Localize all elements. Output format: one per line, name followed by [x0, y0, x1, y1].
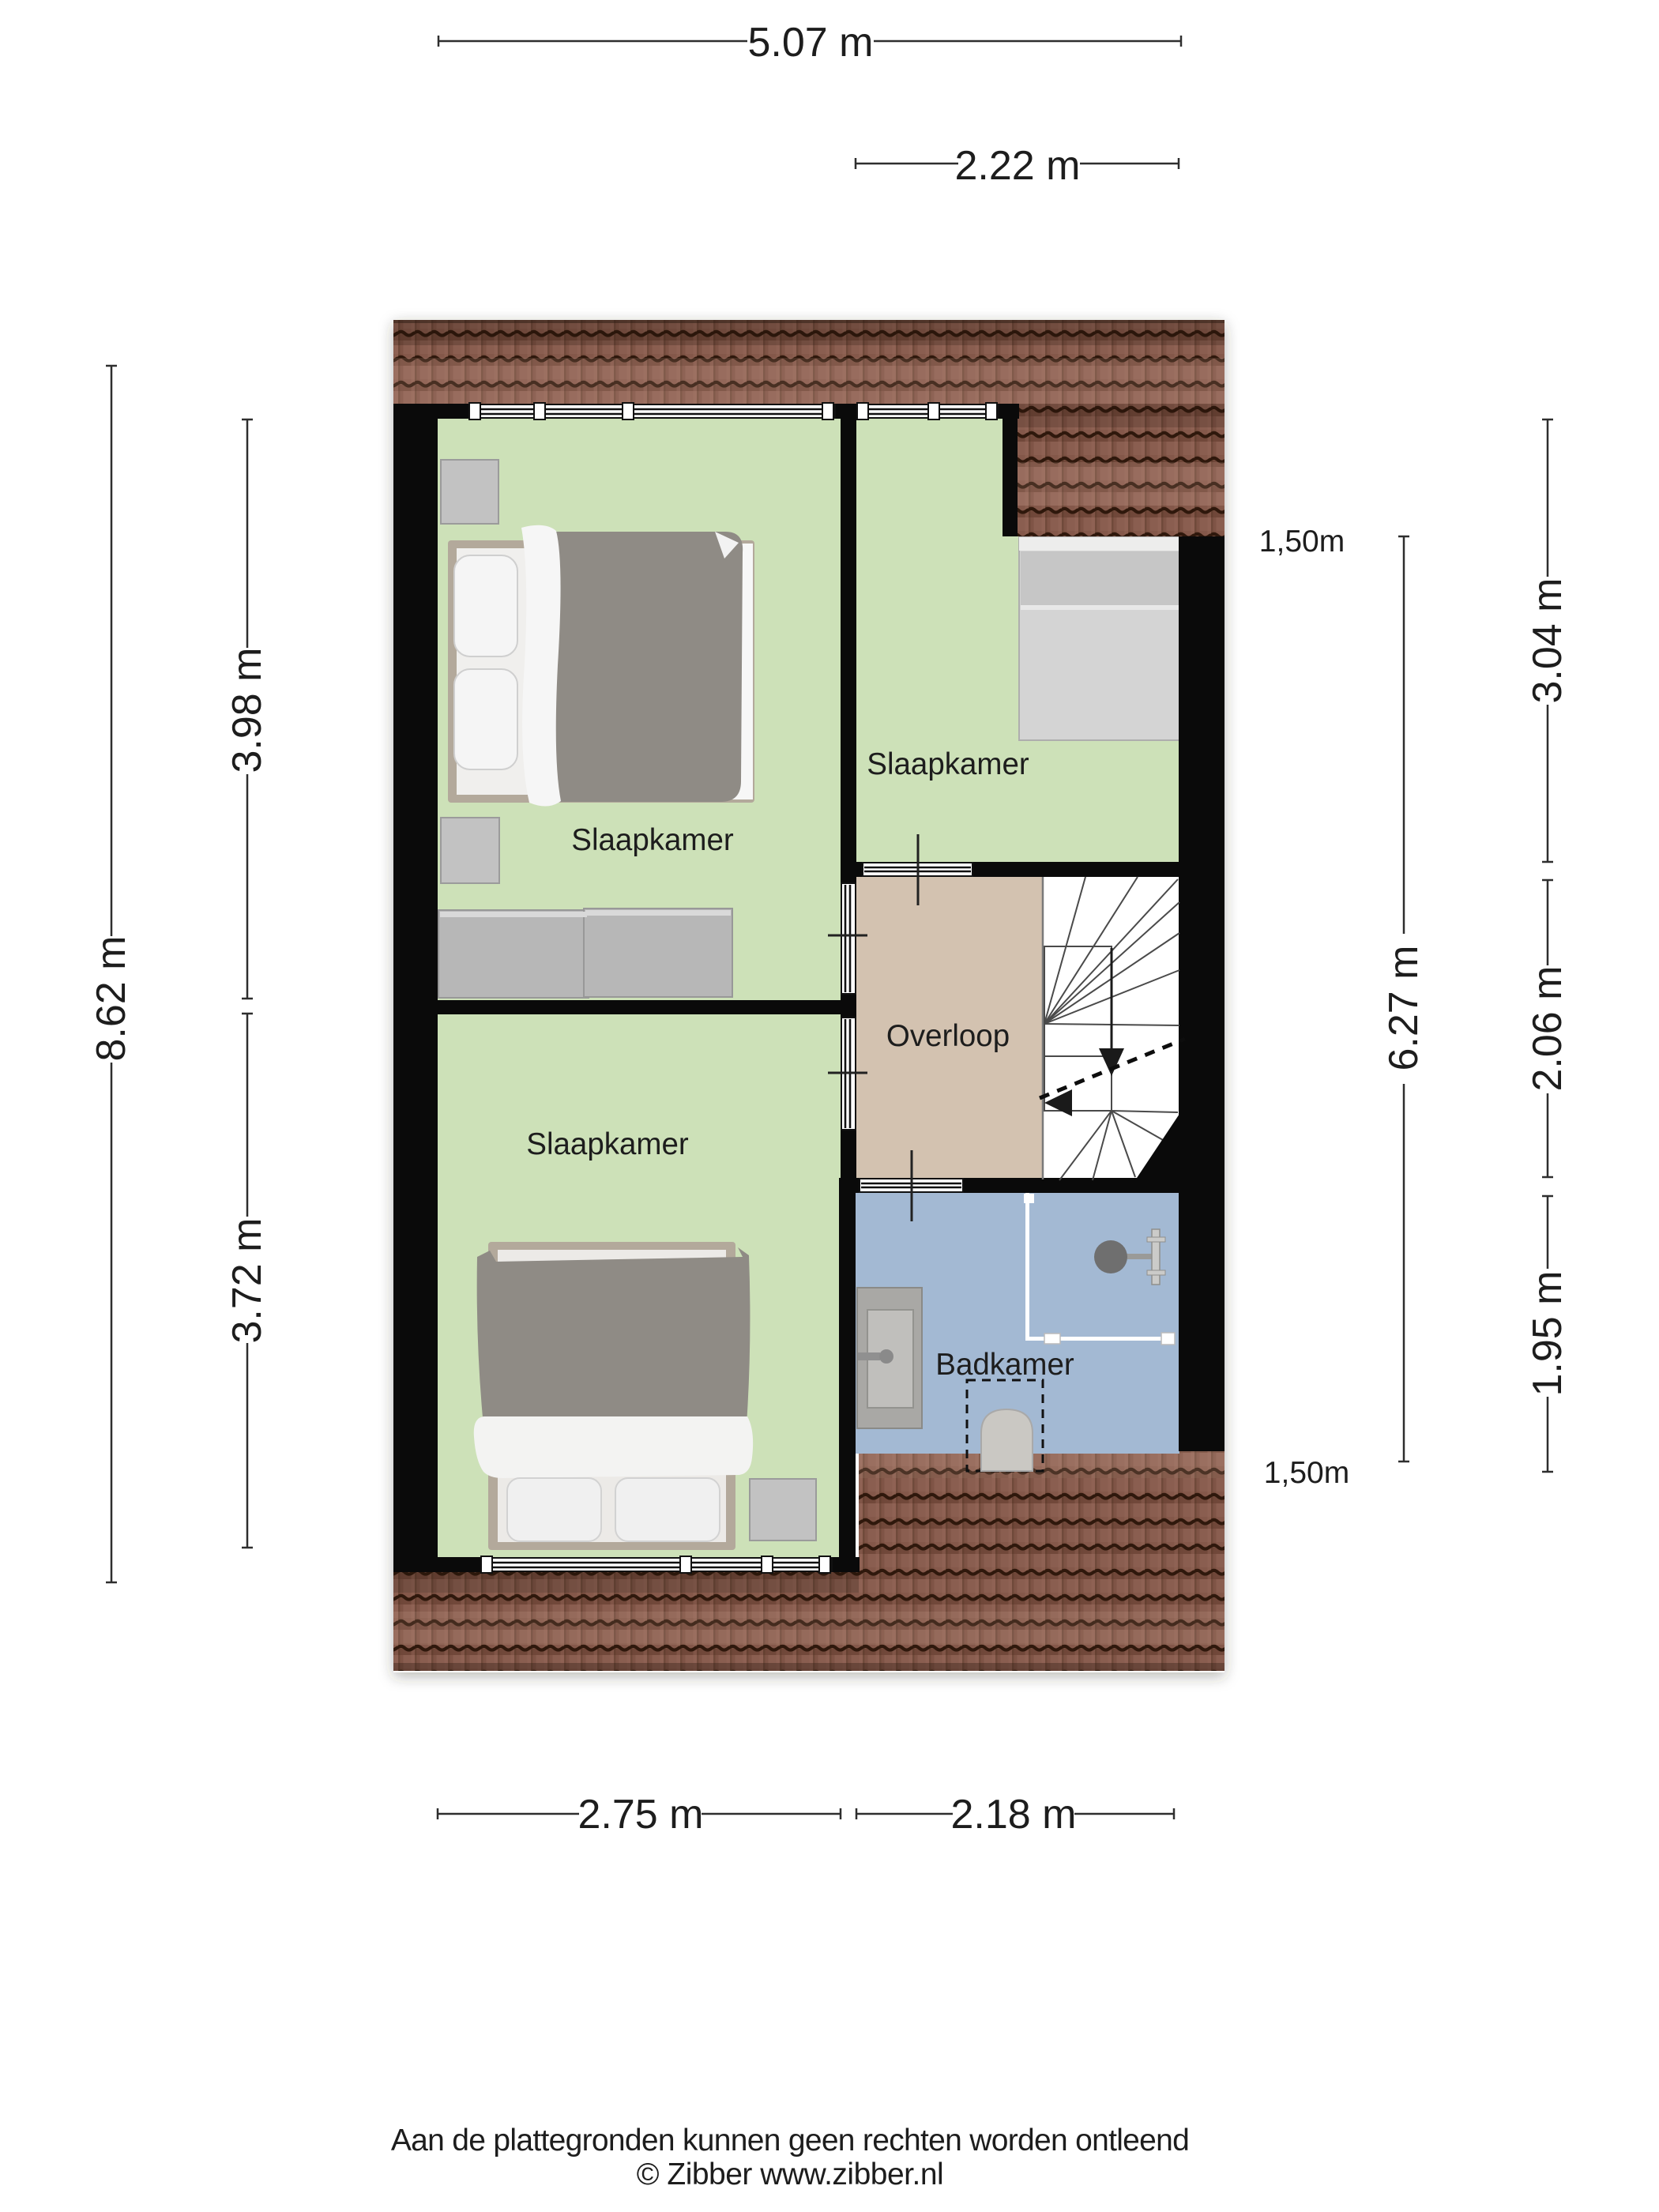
- svg-text:Slaapkamer: Slaapkamer: [526, 1127, 689, 1161]
- svg-text:5.07 m: 5.07 m: [748, 20, 874, 66]
- svg-text:3.72 m: 3.72 m: [224, 1218, 270, 1344]
- svg-text:Aan de plattegronden kunnen ge: Aan de plattegronden kunnen geen rechten…: [391, 2124, 1189, 2157]
- svg-text:1,50m: 1,50m: [1264, 1456, 1349, 1490]
- svg-text:© Zibber www.zibber.nl: © Zibber www.zibber.nl: [637, 2157, 943, 2191]
- svg-text:6.27 m: 6.27 m: [1381, 946, 1427, 1071]
- svg-text:2.06 m: 2.06 m: [1525, 966, 1571, 1092]
- svg-text:3.04 m: 3.04 m: [1525, 578, 1571, 704]
- svg-text:3.98 m: 3.98 m: [224, 648, 270, 773]
- svg-text:Overloop: Overloop: [886, 1019, 1010, 1053]
- svg-text:8.62 m: 8.62 m: [88, 936, 134, 1062]
- svg-text:1,50m: 1,50m: [1259, 525, 1345, 559]
- svg-text:2.18 m: 2.18 m: [951, 1792, 1077, 1838]
- svg-text:Badkamer: Badkamer: [935, 1348, 1074, 1382]
- svg-text:2.75 m: 2.75 m: [578, 1792, 704, 1838]
- svg-text:1.95 m: 1.95 m: [1525, 1271, 1571, 1397]
- svg-text:Slaapkamer: Slaapkamer: [571, 823, 734, 857]
- svg-text:Slaapkamer: Slaapkamer: [867, 747, 1029, 781]
- svg-text:2.22 m: 2.22 m: [955, 143, 1081, 189]
